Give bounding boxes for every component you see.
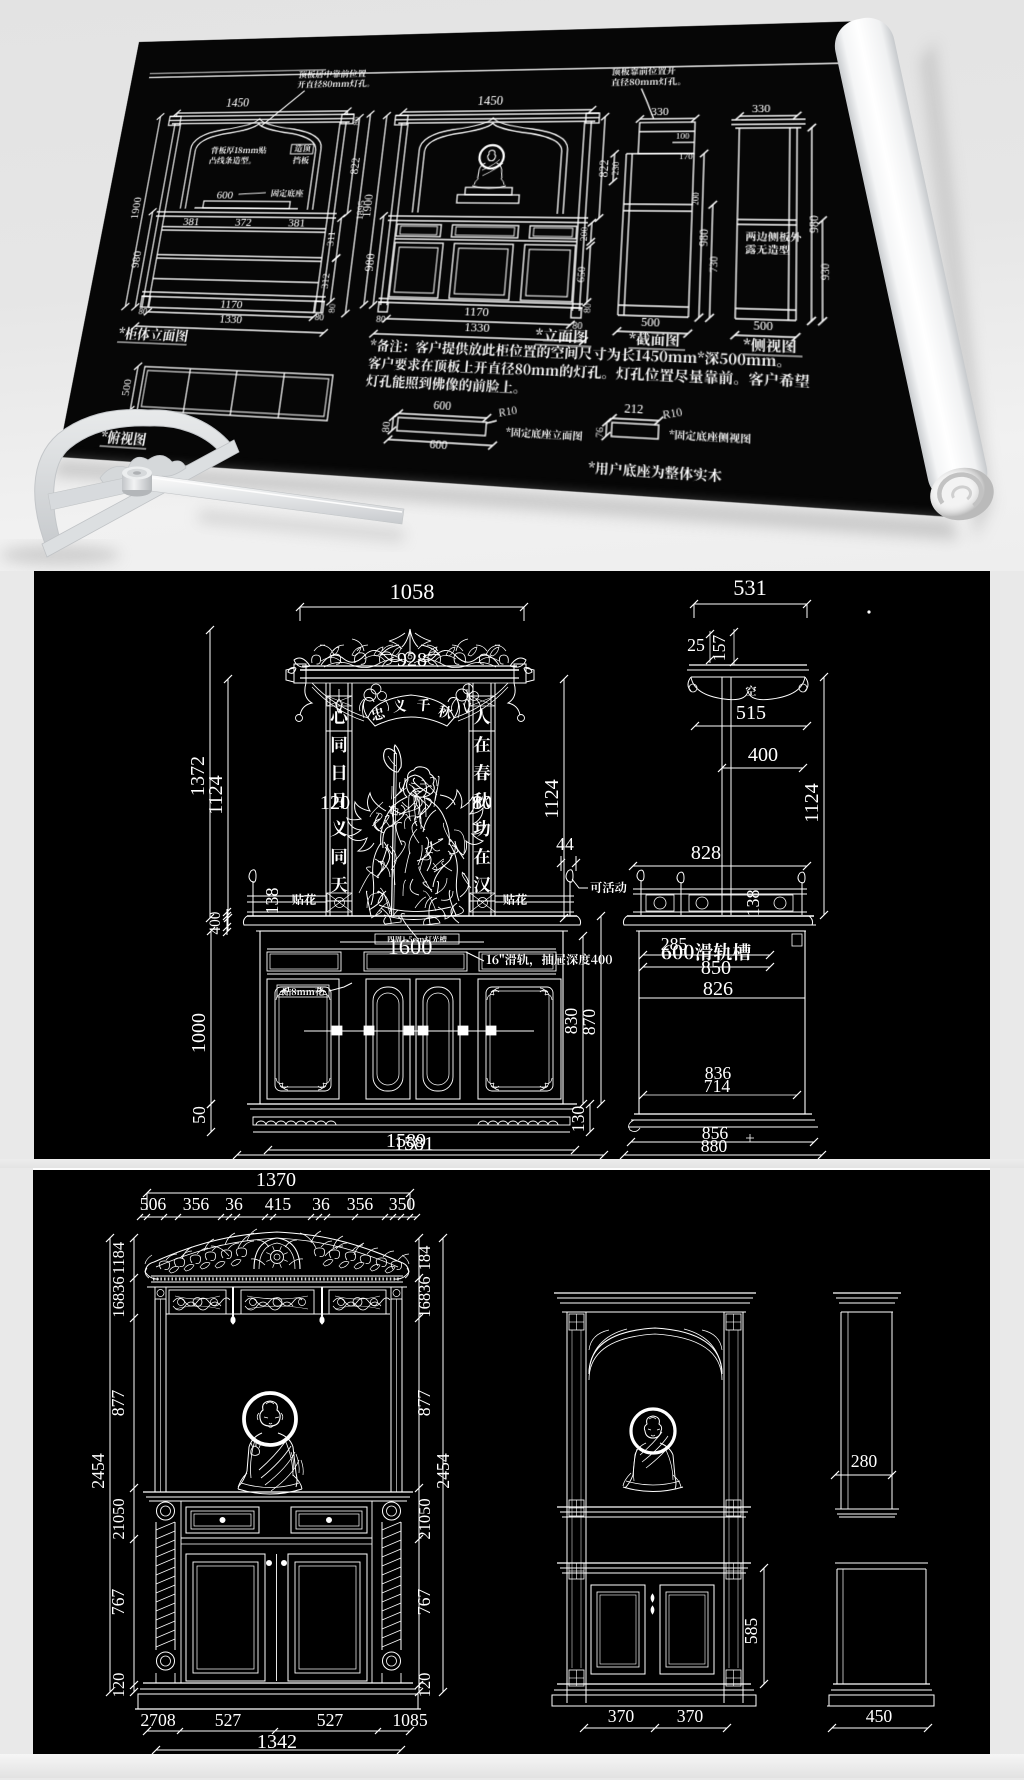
svg-text:36: 36: [312, 1194, 330, 1214]
svg-text:527: 527: [317, 1710, 344, 1730]
svg-text:350: 350: [389, 1194, 416, 1214]
svg-text:450: 450: [866, 1706, 893, 1726]
svg-text:928: 928: [397, 649, 427, 671]
svg-text:370: 370: [677, 1706, 704, 1726]
svg-text:877: 877: [414, 1390, 434, 1417]
svg-text:1184: 1184: [109, 1242, 128, 1274]
svg-text:120: 120: [320, 792, 350, 814]
svg-text:356: 356: [347, 1194, 374, 1214]
svg-text:2708: 2708: [140, 1710, 176, 1730]
svg-text:527: 527: [215, 1710, 242, 1730]
svg-text:506: 506: [140, 1194, 167, 1214]
svg-text:531: 531: [733, 575, 767, 600]
svg-text:1124: 1124: [801, 783, 823, 822]
svg-text:370: 370: [608, 1706, 635, 1726]
svg-text:138: 138: [262, 888, 282, 915]
svg-text:184: 184: [415, 1246, 434, 1271]
svg-text:1124: 1124: [541, 779, 563, 818]
svg-text:877: 877: [108, 1390, 128, 1417]
svg-text:1085: 1085: [392, 1710, 428, 1730]
svg-text:830: 830: [561, 1008, 581, 1035]
svg-text:356: 356: [183, 1194, 210, 1214]
svg-text:1000: 1000: [188, 1013, 210, 1053]
svg-text:585: 585: [741, 1618, 761, 1645]
svg-text:2454: 2454: [88, 1453, 108, 1489]
svg-text:415: 415: [265, 1194, 292, 1214]
svg-text:1370: 1370: [256, 1170, 296, 1191]
svg-text:767: 767: [108, 1589, 128, 1616]
svg-text:80: 80: [472, 792, 492, 814]
svg-text:826: 826: [703, 978, 733, 1000]
svg-text:870: 870: [579, 1009, 599, 1036]
svg-text:1124: 1124: [205, 775, 227, 814]
svg-text:21050: 21050: [109, 1498, 128, 1539]
svg-text:1600: 1600: [388, 934, 433, 959]
svg-text:850: 850: [701, 957, 731, 979]
svg-text:1058: 1058: [390, 579, 435, 604]
svg-text:2454: 2454: [433, 1453, 453, 1489]
svg-text:25: 25: [687, 635, 705, 655]
svg-text:120: 120: [109, 1673, 128, 1698]
svg-text:828: 828: [691, 842, 721, 864]
svg-text:138: 138: [743, 890, 763, 917]
svg-text:280: 280: [851, 1451, 878, 1471]
svg-text:880: 880: [701, 1136, 728, 1156]
svg-text:50: 50: [189, 1106, 209, 1124]
svg-text:120: 120: [415, 1673, 434, 1698]
svg-text:21050: 21050: [415, 1498, 434, 1539]
svg-text:515: 515: [736, 702, 766, 724]
svg-text:1581: 1581: [394, 1133, 434, 1155]
svg-text:16836: 16836: [415, 1276, 434, 1317]
svg-text:767: 767: [414, 1589, 434, 1616]
svg-text:714: 714: [704, 1076, 731, 1096]
svg-text:36: 36: [225, 1194, 243, 1214]
svg-text:400: 400: [748, 744, 778, 766]
svg-text:16836: 16836: [109, 1276, 128, 1317]
svg-text:44: 44: [556, 834, 574, 854]
svg-text:130: 130: [568, 1106, 588, 1133]
